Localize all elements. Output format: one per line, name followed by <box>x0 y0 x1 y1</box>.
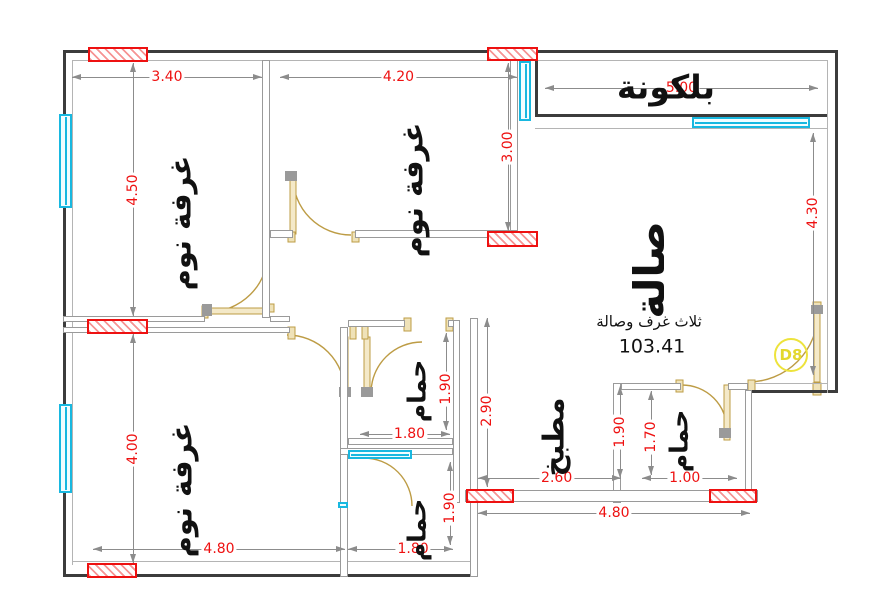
dimension-arrow <box>72 74 81 80</box>
interior-wall <box>728 383 748 390</box>
door-swing-arc <box>293 177 351 235</box>
door-swing-arc <box>208 252 268 312</box>
wall-opening-hatch-icon <box>88 47 148 62</box>
dimension-arrow <box>617 469 623 478</box>
wall-face-line <box>535 128 827 129</box>
dimension-arrow <box>478 475 487 481</box>
door-hinge-icon <box>202 304 212 316</box>
dimension-arrow <box>443 333 449 342</box>
dimension-arrow <box>130 307 136 316</box>
dimension-label: 1.90 <box>613 414 627 449</box>
dimension-arrow <box>348 546 357 552</box>
dimension-label: 1.90 <box>443 490 457 525</box>
dimension-arrow <box>478 510 487 516</box>
door-hinge-icon <box>285 171 297 181</box>
window-glass-line <box>65 117 67 205</box>
dimension-arrow <box>130 63 136 72</box>
window-glass-line <box>525 64 527 118</box>
dimension-arrow <box>505 63 511 72</box>
dimension-label: 4.20 <box>381 70 416 84</box>
interior-wall <box>270 230 293 238</box>
dimension-label: 4.30 <box>806 195 820 230</box>
dimension-arrow <box>336 546 345 552</box>
dimension-arrow <box>93 546 102 552</box>
room-label-kitchen: مطبخ <box>540 398 569 477</box>
room-label-bath-1: حمام <box>405 360 430 423</box>
wall-opening-hatch-icon <box>87 319 148 334</box>
interior-wall <box>470 318 478 503</box>
room-label-bedroom-3: غرفة نوم <box>168 423 197 558</box>
dimension-label: 1.90 <box>439 372 453 407</box>
dimension-arrow <box>447 536 453 545</box>
room-label-hall: صالة <box>629 221 671 319</box>
exterior-wall <box>535 60 538 117</box>
dimension-arrow <box>253 74 262 80</box>
dimension-arrow <box>810 133 816 142</box>
dimension-arrow <box>447 462 453 471</box>
door-jamb-icon <box>350 325 356 339</box>
apartment-area-value: 103.41 <box>619 338 685 357</box>
floor-plan-canvas: 3.404.205.004.503.004.304.004.801.801.90… <box>0 0 890 608</box>
dimension-label: 4.80 <box>596 506 631 520</box>
wall-opening-hatch-icon <box>487 47 538 61</box>
dimension-arrow <box>444 546 453 552</box>
dimension-label: 3.00 <box>501 129 515 164</box>
door-hinge-icon <box>719 428 731 438</box>
dimension-label: 1.70 <box>644 420 658 455</box>
door-hinge-icon <box>361 387 373 397</box>
dimension-arrow <box>508 74 517 80</box>
room-label-bedroom-2: غرفة نوم <box>399 123 428 258</box>
room-label-bath-2: حمام <box>405 499 430 562</box>
wall-face-line <box>827 60 828 393</box>
dimension-arrow <box>810 366 816 375</box>
door-jamb-icon <box>362 325 368 339</box>
dimension-arrow <box>809 85 818 91</box>
room-label-balcony: بلكونة <box>617 71 715 104</box>
door-tag-badge: D8 <box>774 338 808 372</box>
interior-wall <box>470 502 478 577</box>
door-swing-arc <box>287 335 345 393</box>
door-jamb-icon <box>813 383 821 395</box>
dimension-arrow <box>617 386 623 395</box>
interior-wall <box>621 383 681 390</box>
interior-wall <box>270 316 290 322</box>
exterior-wall <box>835 50 838 393</box>
dimension-arrow <box>280 74 289 80</box>
wall-face-line <box>72 60 828 61</box>
dimension-arrow <box>505 222 511 231</box>
apartment-type-label: ثلاث غرف وصالة <box>596 315 702 330</box>
wall-opening-hatch-icon <box>709 489 757 503</box>
dimension-arrow <box>741 510 750 516</box>
dimension-arrow <box>642 475 651 481</box>
door-jamb-icon <box>404 318 411 331</box>
dimension-arrow <box>360 431 369 437</box>
dimension-arrow <box>545 85 554 91</box>
window-glass-line <box>65 407 67 490</box>
dimension-arrow <box>443 421 449 430</box>
door-leaf-icon <box>208 308 268 314</box>
dimension-arrow <box>648 466 654 475</box>
exterior-wall <box>63 50 838 53</box>
dimension-line <box>813 133 814 375</box>
interior-wall <box>262 60 270 318</box>
window-icon <box>338 502 348 508</box>
window-glass-line <box>351 454 409 456</box>
wall-opening-hatch-icon <box>87 563 137 578</box>
dimension-label: 2.90 <box>480 393 494 428</box>
dimension-label: 1.80 <box>392 427 427 441</box>
room-label-bedroom-1: غرفة نوم <box>167 156 196 291</box>
door-leaf-icon <box>290 177 296 234</box>
door-leaf-icon <box>364 337 370 394</box>
wall-opening-hatch-icon <box>487 231 538 247</box>
dimension-label: 3.40 <box>149 70 184 84</box>
interior-wall <box>453 320 460 503</box>
wall-opening-hatch-icon <box>466 489 514 503</box>
dimension-label: 4.50 <box>126 172 140 207</box>
wall-face-line <box>755 383 828 384</box>
room-label-bath-3: حمام <box>667 410 692 473</box>
dimension-arrow <box>130 554 136 563</box>
interior-wall <box>745 390 752 503</box>
exterior-wall <box>748 390 838 393</box>
dimension-label: 1.00 <box>667 471 702 485</box>
dimension-label: 4.80 <box>201 542 236 556</box>
interior-wall <box>348 320 405 327</box>
dimension-arrow <box>648 391 654 400</box>
dimension-arrow <box>728 475 737 481</box>
dimension-label: 4.00 <box>126 431 140 466</box>
window-glass-line <box>695 122 807 124</box>
dimension-arrow <box>130 334 136 343</box>
dimension-arrow <box>441 431 450 437</box>
wall-face-line <box>72 60 73 565</box>
dimension-arrow <box>484 318 490 327</box>
